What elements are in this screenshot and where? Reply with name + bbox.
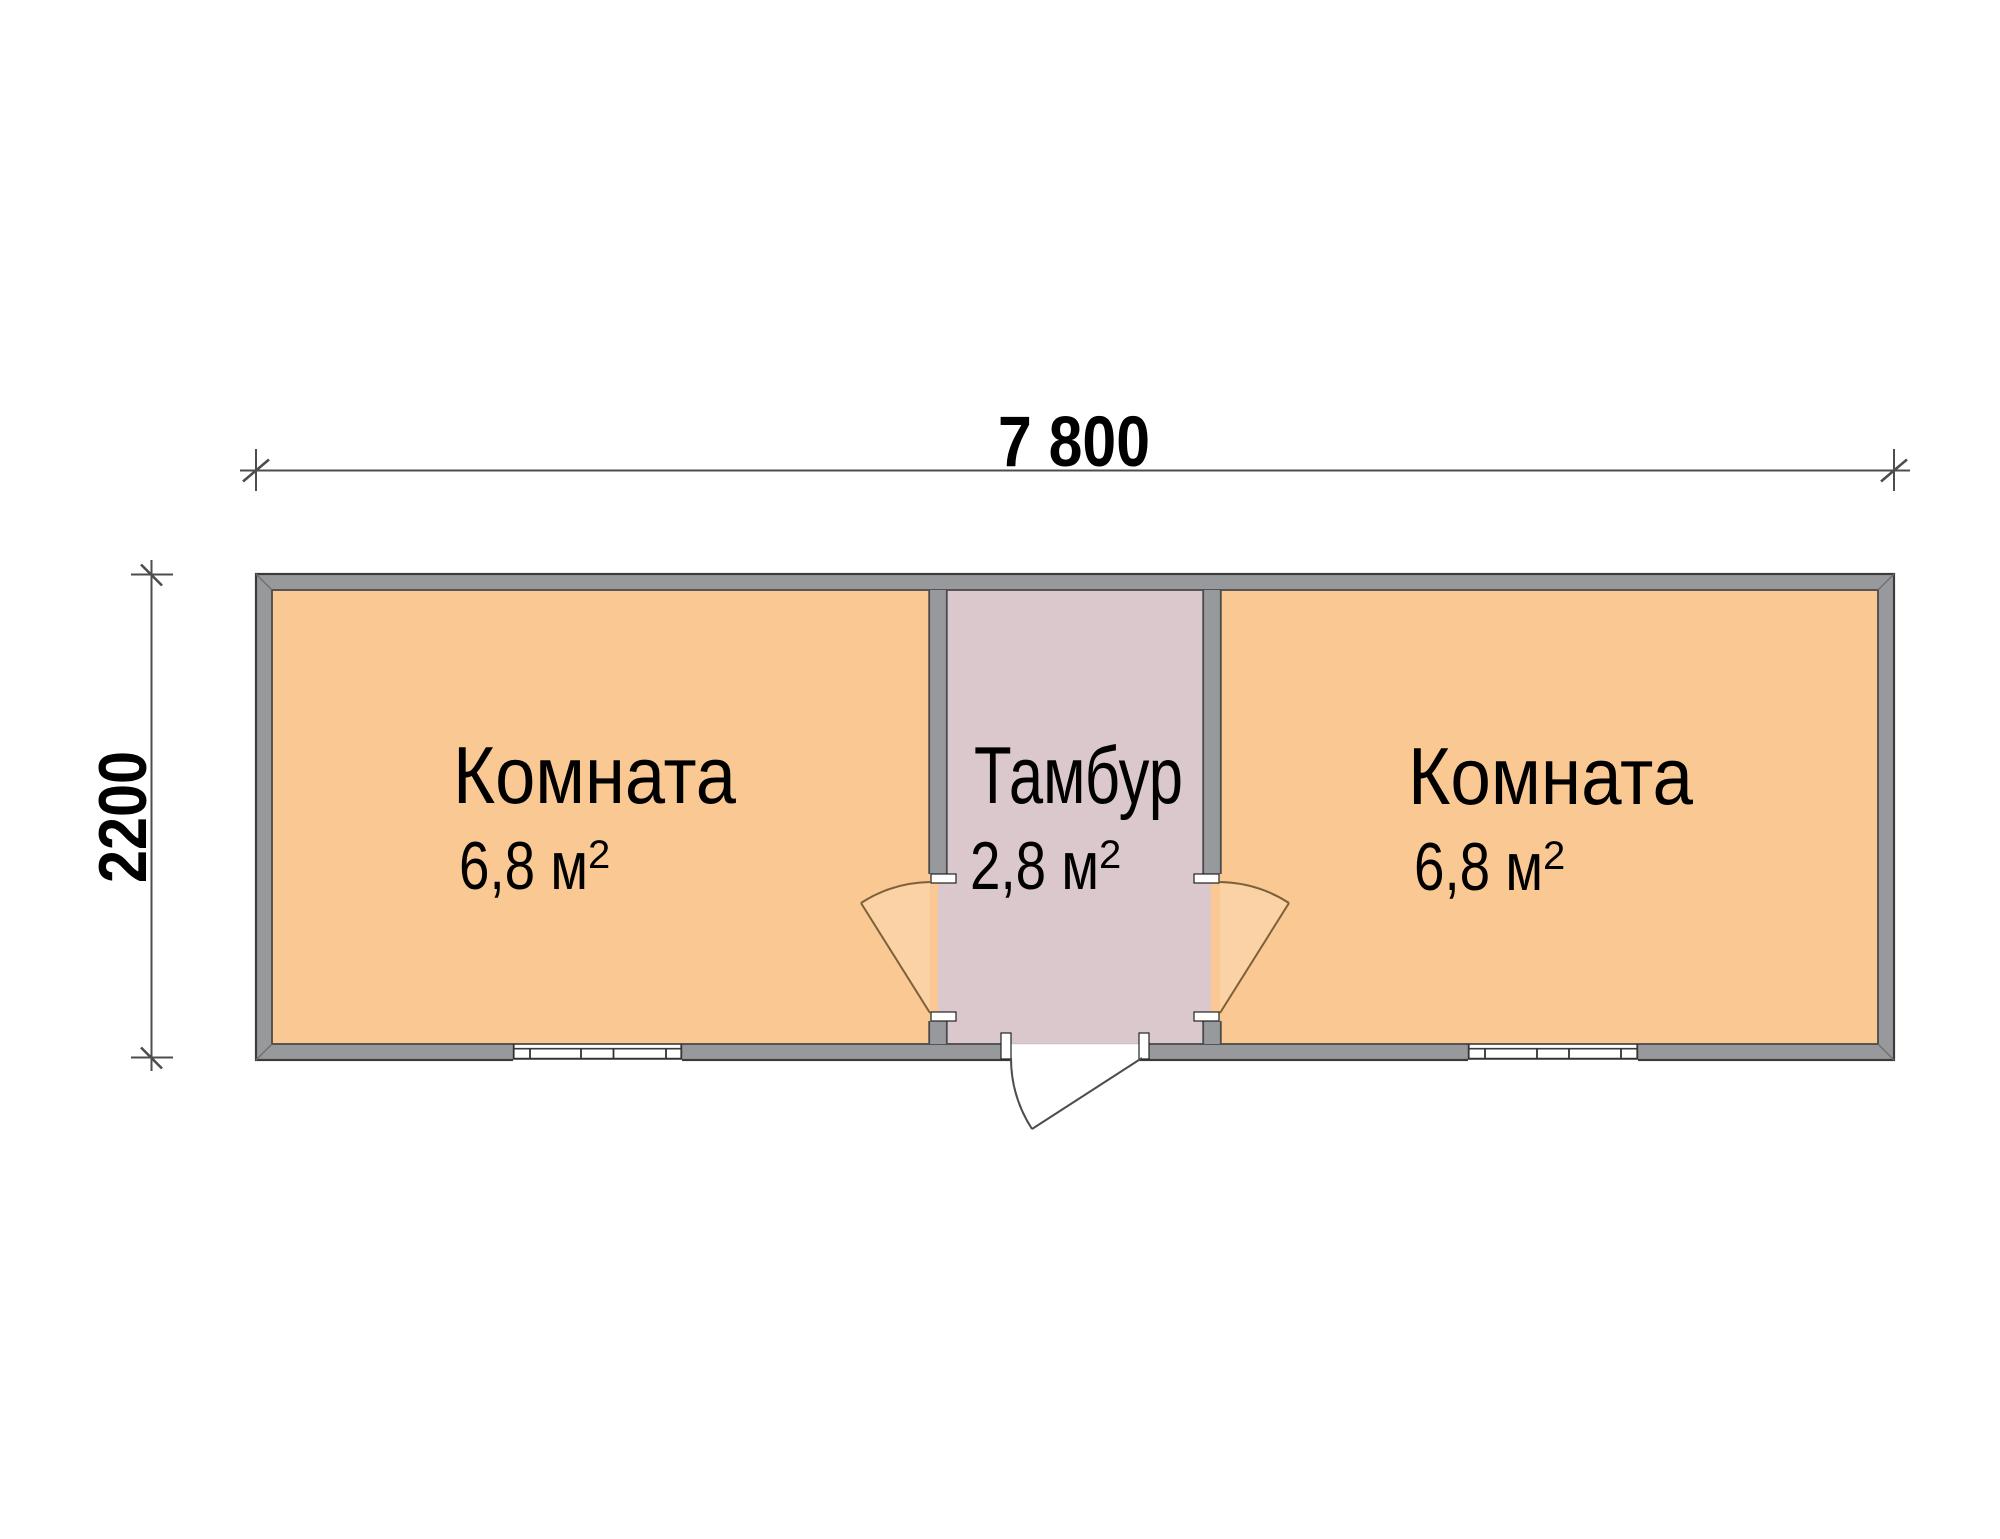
svg-text:6,8 м: 6,8 м xyxy=(1414,829,1543,905)
svg-text:2,8 м: 2,8 м xyxy=(970,828,1099,904)
svg-text:Комната: Комната xyxy=(453,731,737,821)
svg-text:Тамбур: Тамбур xyxy=(974,731,1183,821)
svg-text:2: 2 xyxy=(1543,834,1565,878)
svg-text:2: 2 xyxy=(1099,833,1121,877)
svg-text:2: 2 xyxy=(588,833,610,877)
svg-text:6,8 м: 6,8 м xyxy=(459,828,588,904)
svg-text:7 800: 7 800 xyxy=(998,403,1150,482)
svg-text:2200: 2200 xyxy=(85,751,161,883)
svg-text:Комната: Комната xyxy=(1408,732,1694,822)
